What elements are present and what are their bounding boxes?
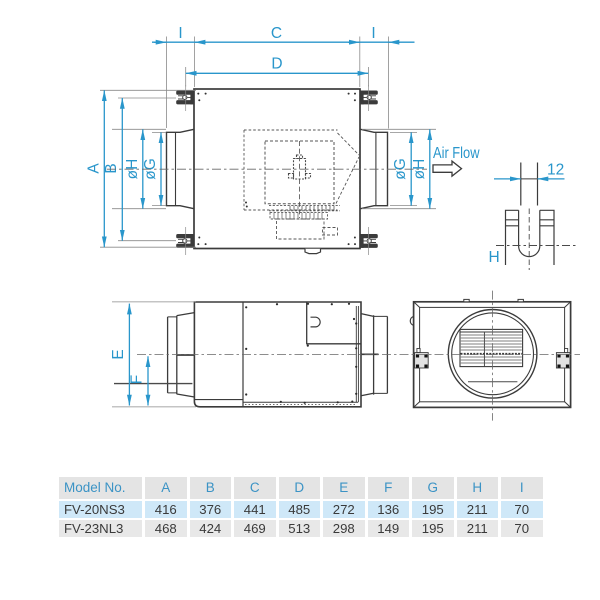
svg-text:D: D: [271, 56, 282, 73]
svg-text:C: C: [271, 25, 282, 42]
svg-text:I: I: [371, 25, 375, 42]
svg-text:H: H: [489, 249, 500, 266]
svg-text:E: E: [110, 349, 127, 359]
svg-text:I: I: [178, 25, 182, 42]
svg-text:B: B: [103, 163, 120, 173]
svg-text:12: 12: [547, 162, 564, 179]
svg-text:Air Flow: Air Flow: [433, 145, 480, 162]
svg-text:F: F: [129, 375, 146, 384]
svg-text:A: A: [86, 163, 103, 174]
